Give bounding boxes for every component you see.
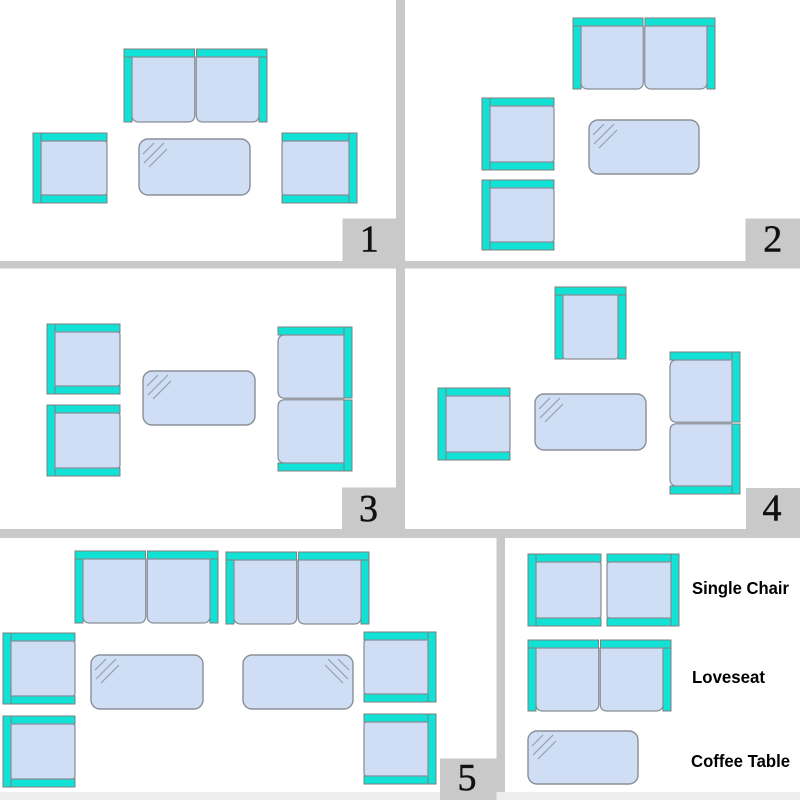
svg-text:2: 2 [763, 219, 782, 261]
svg-text:3: 3 [359, 488, 378, 530]
svg-text:5: 5 [458, 757, 477, 799]
svg-text:1: 1 [360, 219, 379, 261]
svg-text:Single Chair: Single Chair [692, 578, 789, 598]
svg-text:4: 4 [763, 488, 782, 530]
svg-text:Loveseat: Loveseat [692, 667, 765, 687]
svg-text:Coffee Table: Coffee Table [691, 751, 790, 771]
